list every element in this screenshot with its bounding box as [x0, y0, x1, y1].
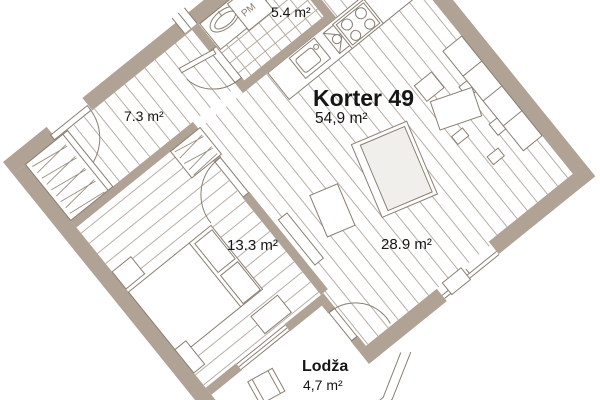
- svg-text:54,9 m²: 54,9 m²: [315, 110, 368, 127]
- svg-text:13.3 m²: 13.3 m²: [227, 237, 278, 254]
- svg-text:Korter 49: Korter 49: [313, 85, 414, 111]
- svg-text:28.9 m²: 28.9 m²: [381, 236, 432, 253]
- svg-text:5.4 m²: 5.4 m²: [271, 4, 311, 20]
- svg-text:7.3 m²: 7.3 m²: [124, 108, 164, 124]
- svg-text:Lodža: Lodža: [302, 358, 348, 375]
- svg-text:4,7 m²: 4,7 m²: [303, 377, 343, 393]
